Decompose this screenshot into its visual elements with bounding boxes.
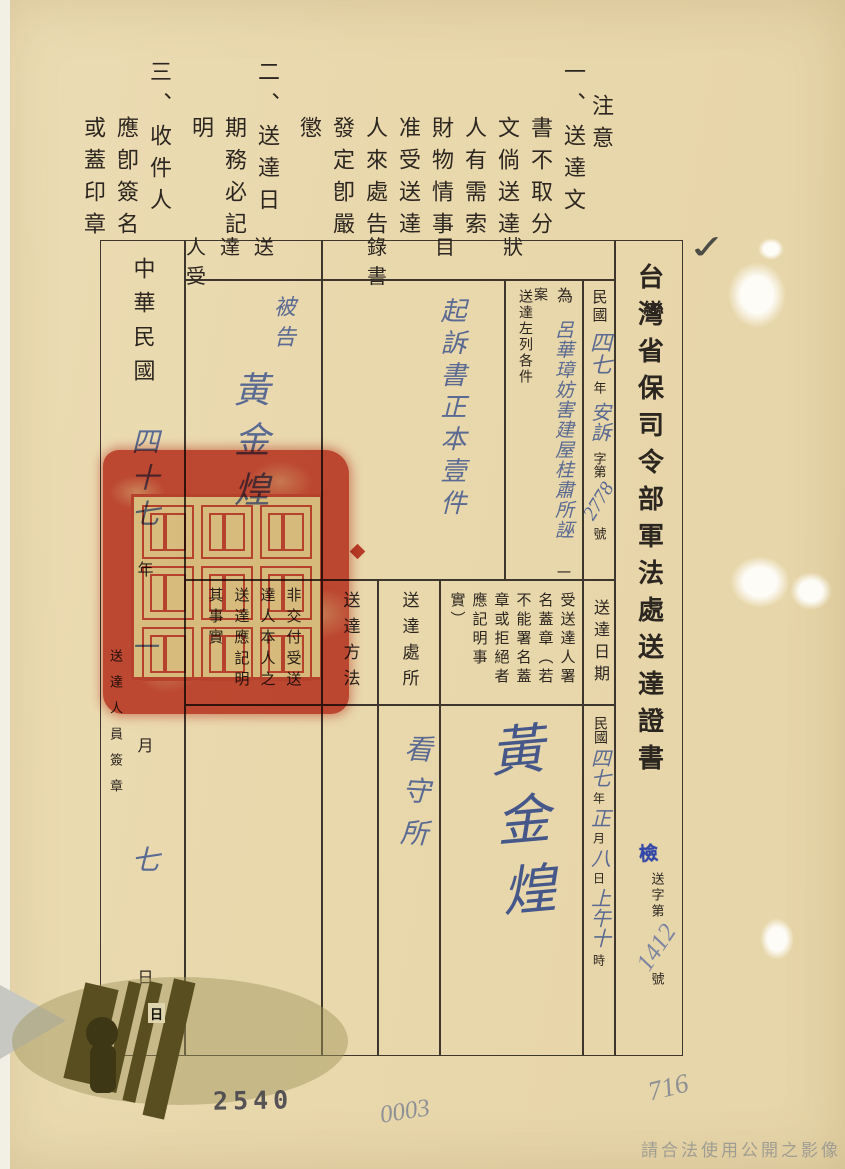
recipient-role-handwritten: 被告	[267, 295, 299, 355]
paper-damage-spot	[790, 572, 832, 610]
case-number-unit: 號	[590, 527, 609, 540]
delivery-time-unit: 時	[591, 954, 608, 966]
issue-day-handwritten: 七	[123, 845, 163, 873]
delivery-era: 民國	[589, 716, 609, 744]
recipient-signature-header: 受送達人署名蓋章（若不能署名蓋章或拒絕者應記明事實）	[440, 580, 583, 705]
recipient-signature-handwritten: 黃金煌	[470, 719, 567, 935]
delivery-place-header: 送達處所	[378, 580, 440, 705]
seal-glyph	[201, 566, 253, 620]
case-word-handwritten: 安訴	[585, 402, 614, 442]
case-number-cell: 民國 四七 年 安訴 字第 2778 號	[583, 280, 615, 580]
person-icon	[90, 1045, 116, 1093]
notice-item-3: 三、收件人應卽簽名或蓋印章	[77, 116, 176, 248]
dispatch-prefix: 送字第	[648, 872, 667, 920]
paper-damage-spot	[758, 238, 784, 260]
red-official-seal	[103, 450, 349, 714]
delivery-place-cell: 看守所	[378, 705, 440, 1056]
seal-glyph	[201, 627, 253, 681]
delivery-date-cell: 民國 四七 年 正 月 八 日 上午十 時	[583, 705, 615, 1056]
scanned-document-page: 注意 一、送達文書不取分文倘送達人有需索財物情事准受送達人來處告發定卽嚴懲 二、…	[0, 0, 845, 1169]
delivery-date-header: 送達日期	[583, 580, 615, 705]
document-list-cell: 起訴書正本壹件	[322, 280, 505, 580]
pencil-folio-number: 716	[645, 1068, 692, 1108]
delivery-month-handwritten: 正	[585, 808, 614, 828]
logo-sun-glyph: 日	[148, 1003, 165, 1023]
seal-glyph	[260, 627, 312, 681]
notice-item-2: 二、送達日期務必記明	[185, 116, 284, 248]
title-column: 台灣省保司令部軍法處送達證書 檢 送字第 1412 號	[615, 240, 683, 1056]
delivery-month-unit: 月	[591, 832, 608, 844]
month-unit: 月	[131, 737, 155, 753]
notice-block: 一、送達文書不取分文倘送達人有需索財物情事准受送達人來處告發定卽嚴懲 二、送達日…	[68, 60, 590, 248]
era-label: 中華民國	[127, 257, 159, 393]
dispatch-number-handwritten: 1412	[631, 919, 682, 976]
document-list-entry-handwritten: 起訴書正本壹件	[433, 297, 470, 521]
case-year-unit: 年	[590, 381, 609, 394]
case-era: 民國	[589, 289, 610, 325]
archive-number-stamp: 2540	[213, 1085, 294, 1115]
seal-glyph	[142, 505, 194, 559]
pencil-page-number: 0003	[378, 1094, 432, 1129]
notice-item-1: 一、送達文書不取分文倘送達人有需索財物情事准受送達人來處告發定卽嚴懲	[293, 116, 590, 248]
seal-glyph	[142, 566, 194, 620]
delivery-year-unit: 年	[591, 792, 608, 804]
usage-notice-text: 請合法使用公開之影像	[641, 1136, 841, 1161]
delivery-day-unit: 日	[591, 872, 608, 884]
case-year-handwritten: 四七	[583, 331, 615, 375]
dispatch-number-group: 送字第 1412 號	[632, 866, 682, 985]
case-purpose-cell: 為 呂華璋妨害建屋桂肅所誣 一案 送達左列各件	[505, 280, 583, 580]
paper-damage-spot	[760, 918, 794, 960]
case-number-handwritten: 2778	[579, 478, 620, 524]
delivery-year-handwritten: 四七	[585, 748, 614, 788]
delivery-day-handwritten: 八	[585, 848, 614, 868]
paper-damage-spot	[728, 262, 786, 328]
case-name-handwritten: 呂華璋妨害建屋桂肅所誣	[552, 320, 573, 540]
recipient-header: 人達送受	[185, 240, 322, 280]
handwritten-checkmark: ✓	[684, 227, 730, 268]
seal-glyph	[201, 505, 253, 559]
archive-watermark-logo: 日	[0, 955, 380, 1150]
document-list-header: 錄目狀書	[322, 240, 615, 280]
seal-glyph	[260, 505, 312, 559]
seal-glyph	[142, 627, 194, 681]
for-label: 為	[554, 287, 571, 303]
delivery-place-handwritten: 看守所	[390, 733, 437, 861]
delivery-time-handwritten: 上午十	[585, 888, 614, 948]
paper-damage-spot	[730, 556, 790, 608]
case-zidi-label: 字第	[590, 452, 609, 478]
deliver-items-label: 送達左列各件	[514, 289, 534, 385]
seal-script-face	[131, 494, 323, 680]
seal-glyph	[260, 566, 312, 620]
recipient-signature-cell: 黃金煌	[440, 705, 583, 1056]
document-title: 台灣省保司令部軍法處送達證書	[631, 263, 668, 781]
check-stamp-blue: 檢	[639, 838, 660, 866]
